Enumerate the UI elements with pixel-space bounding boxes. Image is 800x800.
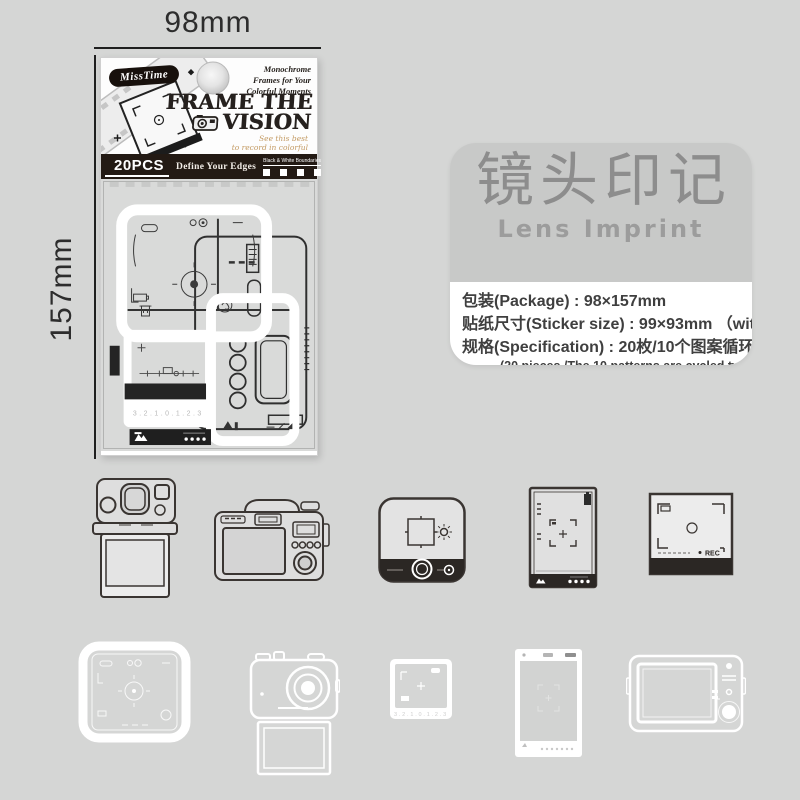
viewfinder-card-square-icon: REC — [648, 492, 734, 576]
package-title: FRAME THE VISION — [164, 92, 314, 132]
product-showcase: 98mm 157mm — [0, 0, 800, 800]
white-rounded-frame-icon — [78, 641, 191, 743]
boundary-squares — [263, 169, 321, 176]
product-title-cn: 镜头印记 — [470, 149, 732, 211]
product-title-en: Lens Imprint — [497, 215, 704, 243]
width-dimension-line — [94, 47, 321, 49]
collage-portrait-frame — [211, 298, 294, 441]
rounded-camera-front-icon — [378, 497, 466, 583]
sticker-sheet-collage-icon: 3.2.1.0.1.2.3 — [101, 179, 317, 449]
boundary-square — [263, 169, 270, 176]
spec-sticker-size: 贴纸尺寸(Sticker size) : 99×93mm （with in) — [462, 313, 752, 336]
compact-camera-back-icon — [213, 496, 333, 586]
boundaries-label: Black & White Boundaries — [263, 158, 321, 166]
white-camera-back-icon — [626, 652, 746, 735]
camera-icon — [192, 114, 219, 131]
instant-camera-icon — [85, 477, 183, 599]
viewfinder-card-portrait-icon — [528, 486, 598, 589]
spec-specification: 规格(Specification) : 20枚/10个图案循环2次 — [462, 336, 752, 359]
package-script-text: See this best to record in colorful — [232, 134, 308, 153]
sticker-sheet: 3.2.1.0.1.2.3 — [101, 179, 317, 451]
boundary-square — [297, 169, 304, 176]
info-panel-header: 镜头印记 Lens Imprint — [450, 143, 752, 282]
collage-photo-frame: 3.2.1.0.1.2.3 — [124, 330, 213, 427]
piece-count-label: 20PCS — [105, 157, 169, 177]
spec-package-size: 包装(Package) : 98×157mm — [462, 290, 752, 313]
boundary-square — [280, 169, 287, 176]
boundary-square — [314, 169, 321, 176]
white-portrait-frame-icon — [514, 648, 583, 758]
info-panel: 镜头印记 Lens Imprint 包装(Package) : 98×157mm… — [450, 143, 752, 365]
height-dimension-line — [94, 55, 96, 459]
frame-number-scale: 3.2.1.0.1.2.3 — [394, 712, 448, 718]
package-info-bar: 20PCS Define Your Edges Black & White Bo… — [101, 154, 317, 179]
sticker-package: MissTime Monochrome Frames for Your Colo… — [100, 57, 318, 456]
height-dimension-label: 157mm — [45, 217, 79, 361]
white-photo-frame-icon: 3.2.1.0.1.2.3 — [389, 658, 453, 726]
white-camera-with-photo-icon — [248, 650, 340, 778]
width-dimension-label: 98mm — [95, 6, 321, 40]
package-title-line2: VISION — [222, 112, 312, 132]
rec-label: REC — [705, 551, 720, 558]
package-header: MissTime Monochrome Frames for Your Colo… — [101, 58, 317, 154]
info-panel-specs: 包装(Package) : 98×157mm 贴纸尺寸(Sticker size… — [450, 282, 752, 365]
boundaries-block: Black & White Boundaries — [263, 158, 324, 176]
frame-number-scale: 3.2.1.0.1.2.3 — [133, 410, 204, 417]
package-slogan: Define Your Edges — [176, 162, 256, 172]
collage-footer-bar — [130, 429, 211, 445]
spec-note: (20 pieces /The 10 patterns are cycled t… — [500, 359, 752, 365]
